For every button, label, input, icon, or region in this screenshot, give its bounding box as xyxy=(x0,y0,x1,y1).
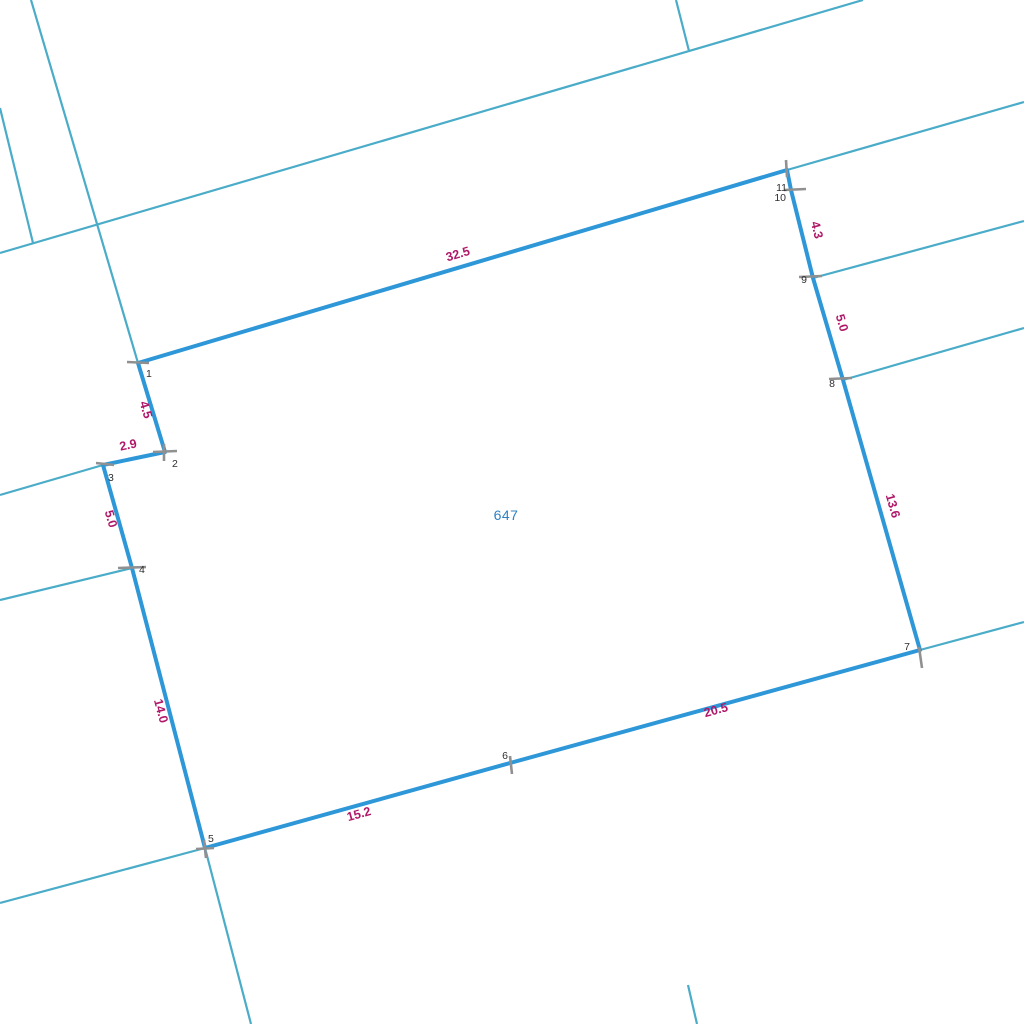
adjacent-boundary-line xyxy=(0,568,132,600)
survey-tick xyxy=(784,189,806,190)
vertex-number-label: 11 xyxy=(776,182,787,194)
vertex-number-label: 7 xyxy=(904,641,910,653)
vertex-number-label: 4 xyxy=(139,564,145,576)
adjacent-boundary-line xyxy=(0,848,205,903)
adjacent-boundary-line xyxy=(676,0,689,51)
vertex-number-label: 8 xyxy=(829,378,835,390)
survey-tick xyxy=(127,362,149,363)
dimension-label: 2.9 xyxy=(118,436,138,453)
adjacent-boundary-line xyxy=(31,0,138,363)
adjacent-boundary-line xyxy=(0,108,33,243)
adjacent-boundary-line xyxy=(688,985,697,1024)
survey-tick xyxy=(204,840,206,858)
dimension-label: 5.0 xyxy=(833,313,851,334)
adjacent-boundary-line xyxy=(0,465,103,495)
vertex-number-label: 2 xyxy=(172,458,178,470)
adjacent-boundary-line xyxy=(920,622,1024,650)
adjacent-boundary-line xyxy=(0,0,863,253)
survey-tick xyxy=(786,160,787,177)
dimension-label: 20.5 xyxy=(702,700,729,720)
dimension-label: 4.3 xyxy=(808,220,826,240)
adjacent-boundary-line xyxy=(787,102,1024,170)
cadastral-map-canvas: 123456789101132.54.35.013.620.515.214.05… xyxy=(0,0,1024,1024)
vertex-number-label: 3 xyxy=(108,472,114,484)
vertex-number-label: 6 xyxy=(502,750,508,762)
dimension-label: 13.6 xyxy=(883,492,903,519)
dimension-label: 32.5 xyxy=(444,244,471,264)
dimension-label: 4.5 xyxy=(137,399,155,420)
adjacent-boundary-line xyxy=(813,221,1024,278)
parcel-number-label: 647 xyxy=(494,507,519,523)
adjacent-boundary-line xyxy=(205,848,251,1024)
vertex-number-label: 9 xyxy=(801,274,807,286)
vertex-number-label: 1 xyxy=(146,368,152,380)
adjacent-boundary-line xyxy=(843,328,1024,380)
vertex-number-label: 5 xyxy=(208,833,214,845)
survey-tick xyxy=(510,756,512,774)
